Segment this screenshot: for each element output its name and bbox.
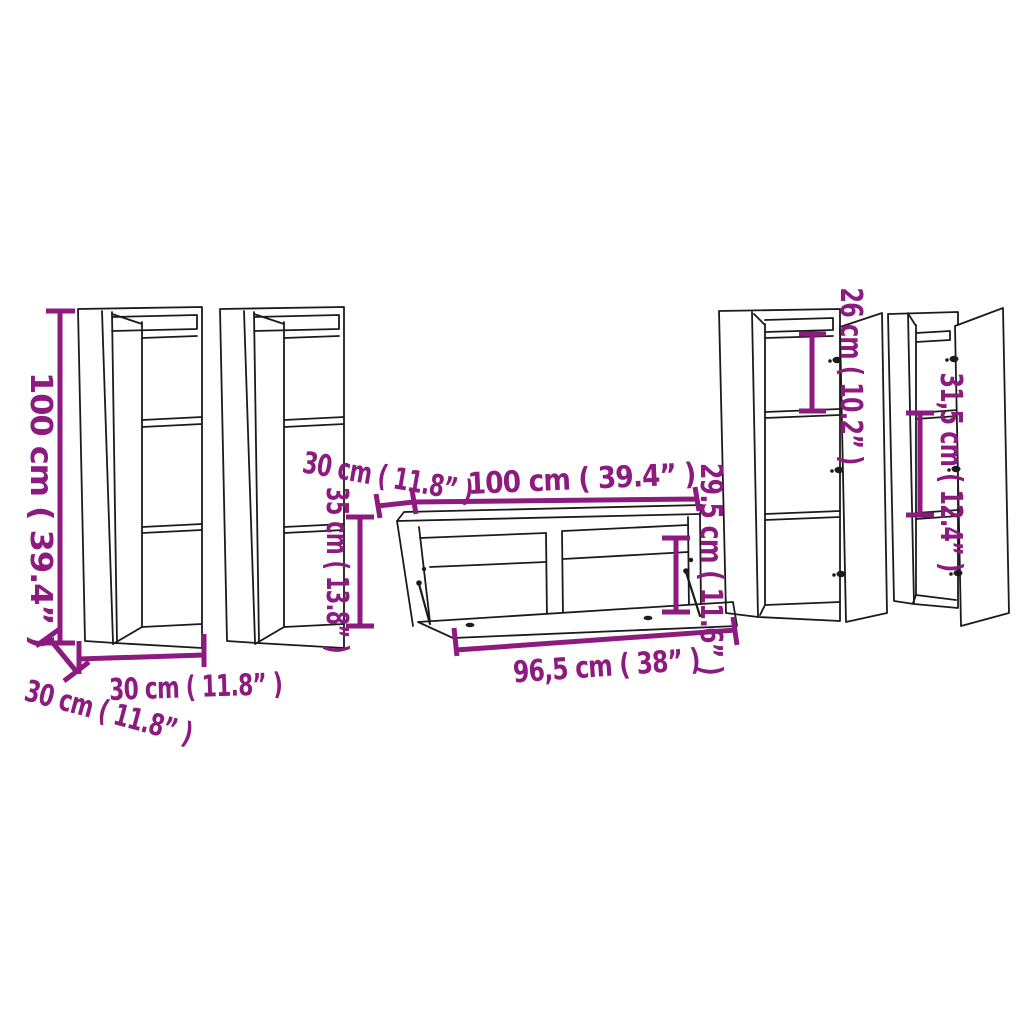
cabinet-side-panel-lines: [102, 311, 117, 643]
label-right-upper-compartment: 26 cm ( 10.2” ): [833, 288, 868, 465]
tv-top-rails: [420, 525, 688, 538]
cabinet-outline: [719, 309, 840, 621]
furniture-dimension-diagram: 100 cm ( 39.4” ) 30 cm ( 11.8” ) 30 cm (…: [0, 0, 1024, 1024]
tv-center-divider: [546, 531, 563, 620]
cabinet-side-inner: [908, 313, 914, 604]
label-tv-width: 100 cm ( 39.4” ): [467, 457, 696, 502]
cabinet-shelf-1: [142, 417, 202, 427]
tv-stand: [397, 505, 737, 638]
label-right-middle-compartment: 31,5 cm ( 12.4” ): [933, 373, 968, 572]
cabinet-side-inner: [752, 312, 758, 617]
label-tv-height: 35 cm ( 13.8” ): [319, 487, 354, 653]
cabinet-bottom: [760, 602, 840, 615]
label-left-cabinet-height: 100 cm ( 39.4” ): [23, 372, 58, 648]
dim-line-left-cabinet-width: [79, 634, 204, 674]
cabinet-bottom: [113, 624, 202, 644]
tv-back-panel-lines: [430, 552, 688, 567]
dim-line-right-upper-compartment: [799, 334, 826, 411]
wall-cabinet-left-1: [78, 307, 202, 648]
dim-line-tv-door-height: [662, 538, 690, 612]
tv-top-panel: [397, 505, 702, 521]
cabinet-shelf-2: [142, 524, 202, 533]
cabinet-bottom: [913, 595, 956, 603]
cabinet-top-rail: [916, 331, 950, 342]
diagram-canvas: 100 cm ( 39.4” ) 30 cm ( 11.8” ) 30 cm (…: [0, 0, 1024, 1024]
label-tv-door-width: 96,5 cm ( 38” ): [512, 643, 701, 691]
cabinet-outline: [78, 307, 202, 648]
cabinet-shelf-2: [765, 511, 840, 520]
